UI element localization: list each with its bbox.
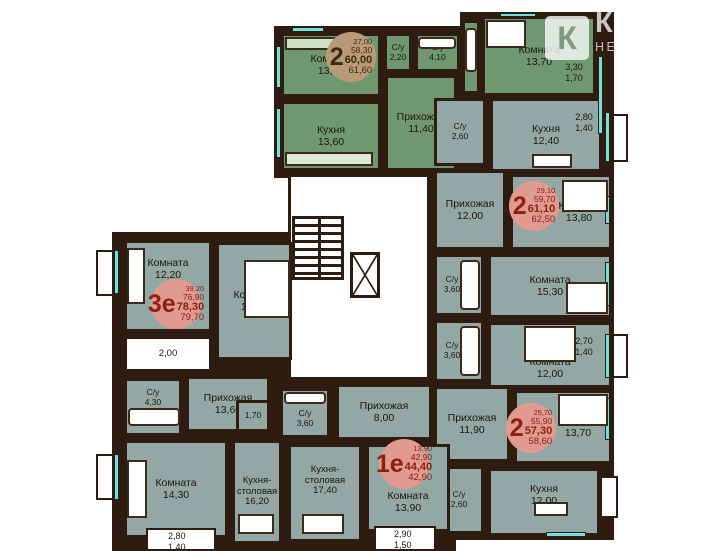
table-icon [238,514,274,534]
stairs [292,216,344,280]
window-icon [114,454,119,500]
balcony-box [612,334,628,378]
balcony-area-label: 3,301,70 [556,62,592,84]
unit-badge-3e: 3е 39,2076,9078,3079,70 [151,279,201,329]
balcony-box [96,454,114,500]
bathtub-icon [284,392,326,404]
bed-icon [486,20,526,48]
room-su-4-30: С/у4,30 [124,378,182,436]
bed-icon [558,394,608,426]
watermark: К КРЕАЛТ НЕДВИЖИМОСТЬ [545,8,712,60]
watermark-subtitle: НЕДВИЖИМОСТЬ [595,40,712,54]
unit-badge-2-61: 2 29,1059,7061,1062,50 [509,181,559,231]
unit-badge-1e: 1е 13,9042,9044,4042,90 [379,439,429,489]
loggia-2-00: 2,00 [124,336,212,372]
table-icon [532,154,572,168]
floor-plan: Комната13,30 Кухня13,60 Прихожая11,40 С/… [0,0,712,551]
realty-logo-icon: К [545,16,589,60]
bathtub-icon [460,326,480,376]
balcony-area-label: 2,801,40 [168,531,186,551]
balcony-box-bottom-middle: 2,901,50 [374,526,436,551]
bathtub-icon [418,37,456,49]
window-icon [114,250,119,294]
bed-icon [244,260,290,318]
window-icon [276,46,281,88]
watermark-brand: КРЕАЛТ [595,8,712,40]
bed-icon [566,282,608,314]
balcony-box [96,250,114,296]
kitchen-counter-icon [285,152,373,166]
bathtub-icon [128,408,180,426]
window-icon [546,532,586,537]
stair-rail [318,219,321,277]
balcony-area-label: 2,801,40 [566,112,602,134]
balcony-box-bottom-left: 2,801,40 [146,528,216,551]
balcony-area-label: 2,901,50 [394,529,412,551]
balcony-box [612,114,628,162]
table-icon [302,514,344,534]
window-icon [276,108,281,158]
window-icon [605,334,610,378]
room-prihozhaya-8-00: Прихожая8,00 [336,384,432,440]
bathtub-icon [460,260,480,310]
storage-1-70: 1,70 [236,400,270,432]
window-icon [605,112,610,162]
room-su-2-20: С/у2,20 [384,33,412,72]
unit-badge-2-60: 2 27,0058,3060,0061,60 [326,32,376,82]
bed-icon [524,326,576,362]
bed-icon [562,180,608,212]
unit-badge-2-57: 2 25,7055,9057,3058,60 [506,403,556,453]
room-su-2-60-a: С/у2,60 [434,98,486,166]
bed-icon [127,460,147,518]
elevator-icon [350,252,380,298]
balcony-box [600,476,618,518]
window-icon [500,13,536,17]
bathtub-icon [465,28,477,72]
window-icon [292,27,324,32]
bed-icon [127,248,145,304]
table-icon [534,502,568,516]
room-prihozhaya-12-00: Прихожая12,00 [434,170,506,250]
